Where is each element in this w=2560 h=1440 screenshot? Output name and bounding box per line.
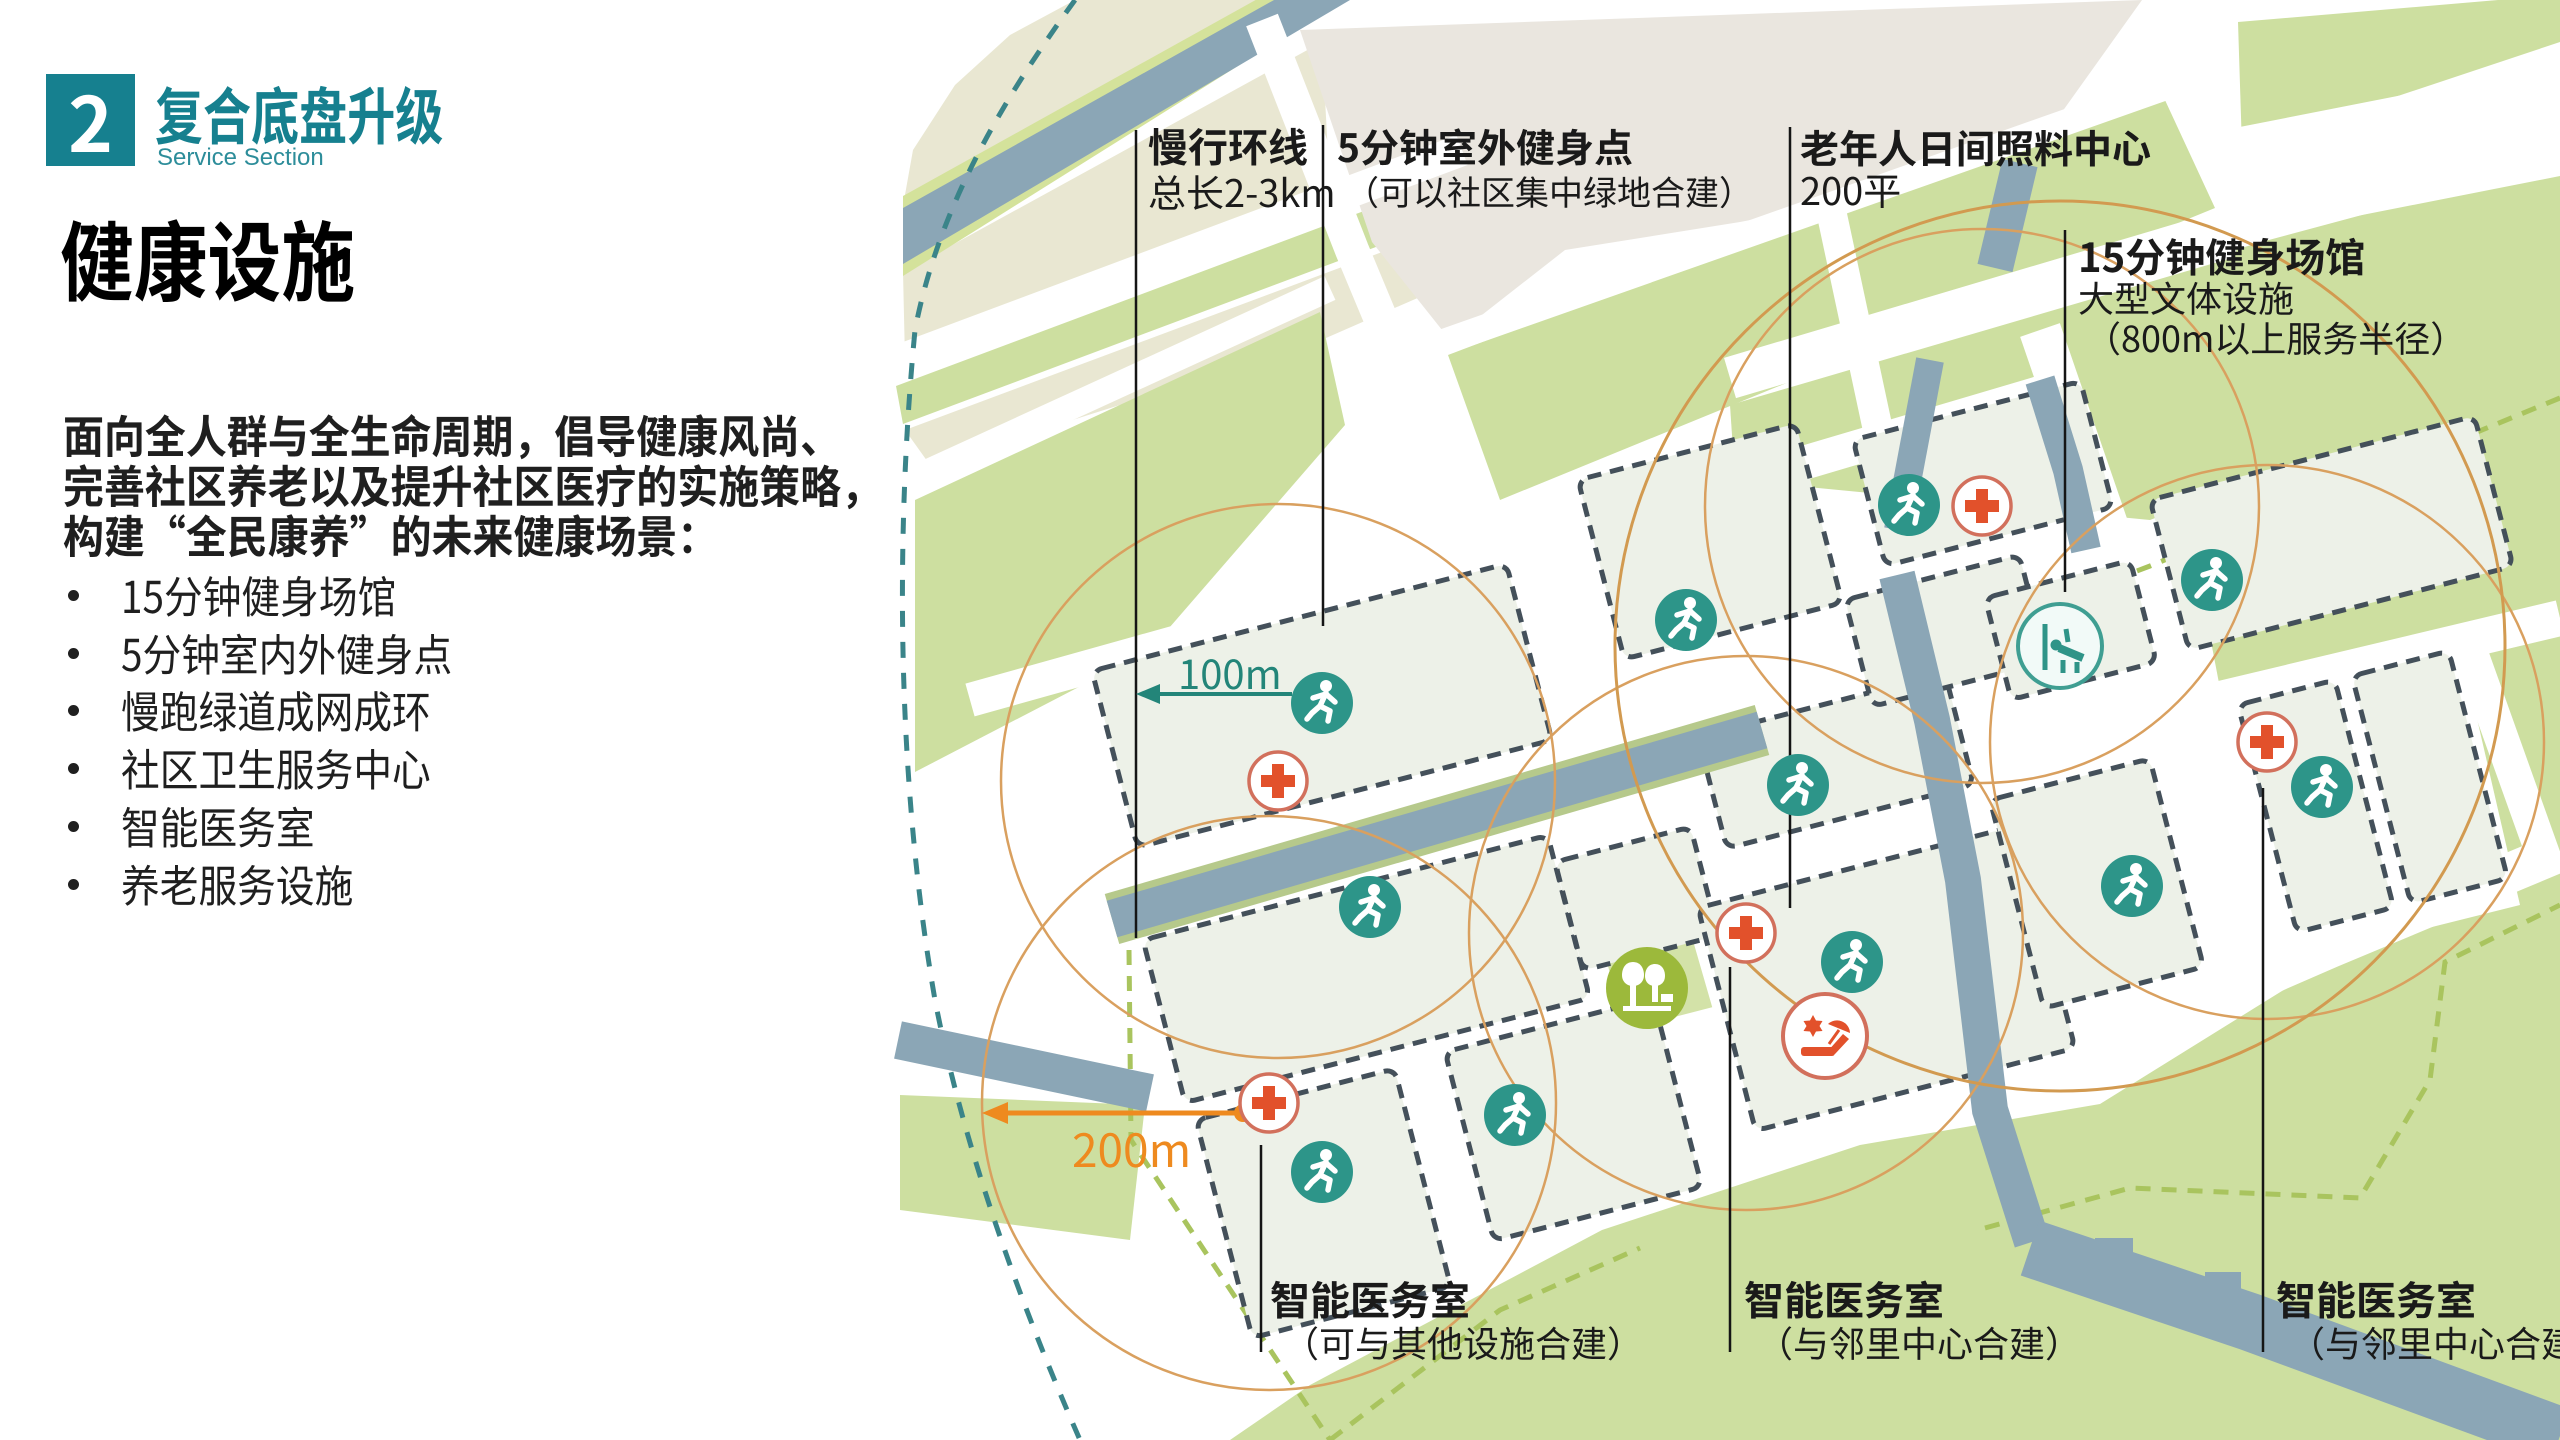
svg-text:100m: 100m: [1178, 643, 1282, 701]
svg-text:（800m以上服务半径）: （800m以上服务半径）: [2085, 311, 2466, 363]
svg-text:（与邻里中心合建）: （与邻里中心合建）: [1757, 1316, 2081, 1368]
svg-text:（与邻里中心合建）: （与邻里中心合建）: [2289, 1316, 2560, 1368]
svg-text:总长2-3km: 总长2-3km: [1148, 163, 1336, 218]
svg-text:200平: 200平: [1800, 161, 1901, 216]
svg-text:（可以社区集中绿地合建）: （可以社区集中绿地合建）: [1345, 166, 1753, 215]
svg-text:（可与其他设施合建）: （可与其他设施合建）: [1283, 1316, 1643, 1368]
svg-text:200m: 200m: [1072, 1115, 1191, 1181]
